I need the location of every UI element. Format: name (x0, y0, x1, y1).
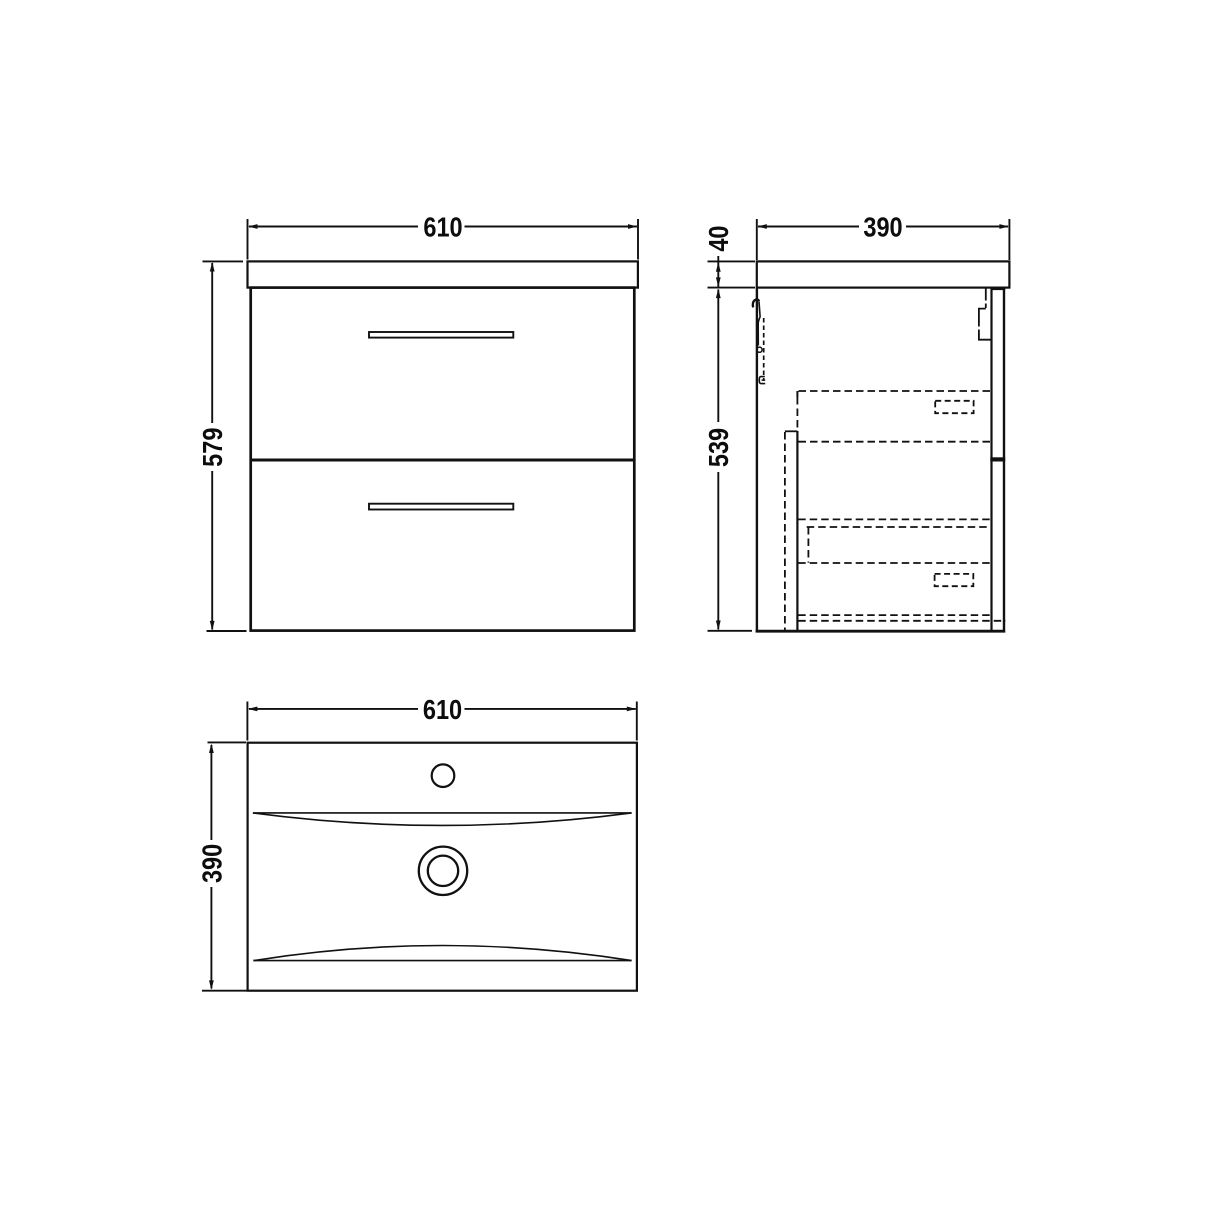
svg-text:390: 390 (863, 213, 902, 243)
svg-text:610: 610 (423, 695, 462, 725)
svg-text:579: 579 (198, 428, 228, 467)
svg-text:539: 539 (704, 428, 734, 467)
svg-text:390: 390 (197, 844, 227, 883)
svg-text:610: 610 (423, 213, 462, 243)
svg-text:40: 40 (704, 226, 734, 252)
